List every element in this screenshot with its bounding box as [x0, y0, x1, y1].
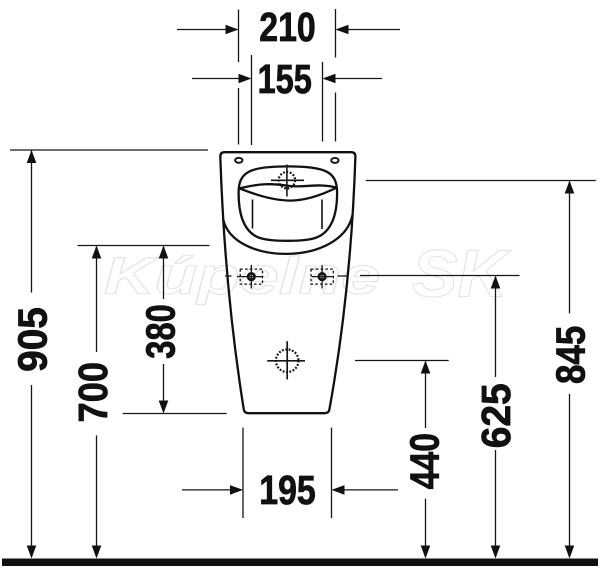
svg-text:210: 210	[259, 4, 316, 50]
svg-text:155: 155	[258, 56, 312, 102]
svg-text:195: 195	[259, 467, 316, 513]
svg-text:845: 845	[547, 326, 593, 384]
svg-text:SK: SK	[412, 237, 512, 312]
svg-text:905: 905	[10, 307, 56, 372]
svg-text:625: 625	[473, 383, 519, 448]
svg-text:440: 440	[402, 433, 448, 489]
svg-text:380: 380	[138, 304, 184, 358]
svg-text:700: 700	[70, 362, 116, 423]
